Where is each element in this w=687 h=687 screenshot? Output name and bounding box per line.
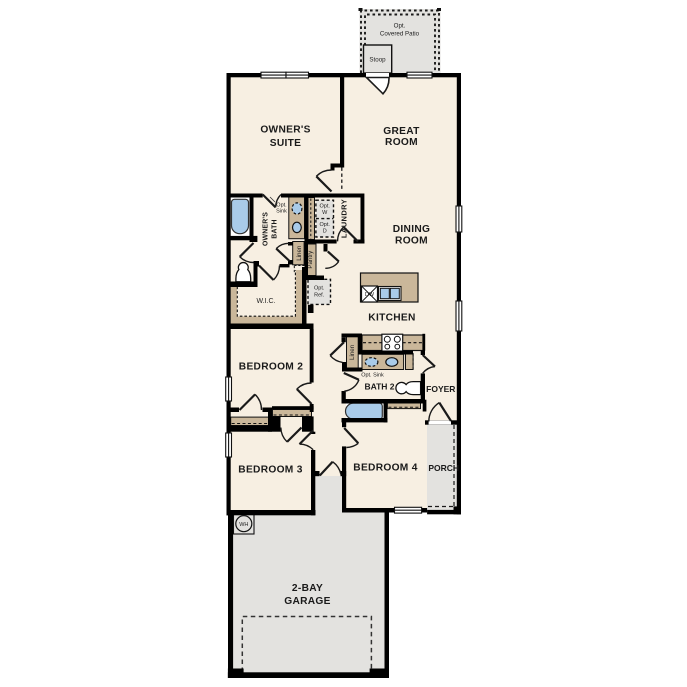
- svg-text:Opt.: Opt.: [319, 204, 330, 210]
- svg-text:ROOM: ROOM: [395, 236, 428, 247]
- svg-text:Sink: Sink: [276, 209, 287, 215]
- svg-text:Opt.: Opt.: [319, 222, 330, 228]
- svg-text:LAUNDRY: LAUNDRY: [339, 199, 348, 238]
- svg-text:SUITE: SUITE: [270, 138, 302, 149]
- svg-text:BATH: BATH: [272, 219, 279, 238]
- svg-text:PORCH: PORCH: [428, 463, 459, 473]
- svg-text:ROOM: ROOM: [385, 137, 418, 148]
- svg-text:BEDROOM 3: BEDROOM 3: [238, 464, 302, 475]
- svg-text:Opt. Sink: Opt. Sink: [361, 373, 384, 379]
- svg-text:Linen: Linen: [296, 245, 303, 261]
- svg-text:W: W: [322, 210, 328, 216]
- svg-text:DINING: DINING: [393, 224, 430, 235]
- svg-text:BEDROOM 2: BEDROOM 2: [239, 361, 303, 372]
- svg-text:Stoop: Stoop: [369, 57, 386, 64]
- svg-text:OWNER'S: OWNER'S: [260, 125, 310, 136]
- svg-text:Opt.: Opt.: [394, 23, 406, 30]
- svg-text:2-BAY: 2-BAY: [292, 583, 323, 594]
- svg-text:D: D: [323, 229, 327, 235]
- svg-text:Covered Patio: Covered Patio: [380, 31, 420, 38]
- svg-text:BEDROOM 4: BEDROOM 4: [353, 463, 417, 474]
- svg-text:DW: DW: [365, 292, 375, 298]
- svg-text:Opt.: Opt.: [314, 286, 325, 292]
- svg-text:Pantry: Pantry: [307, 250, 314, 269]
- svg-text:GARAGE: GARAGE: [284, 596, 331, 607]
- svg-text:Linen: Linen: [349, 344, 356, 360]
- svg-text:FOYER: FOYER: [426, 384, 455, 394]
- svg-text:Ref.: Ref.: [314, 293, 325, 299]
- svg-text:BATH 2: BATH 2: [364, 381, 394, 391]
- svg-text:GREAT: GREAT: [383, 126, 420, 137]
- svg-text:W.I.C.: W.I.C.: [256, 298, 275, 305]
- svg-text:KITCHEN: KITCHEN: [368, 312, 415, 323]
- svg-text:WH: WH: [239, 522, 248, 528]
- svg-text:OWNER'S: OWNER'S: [263, 212, 270, 246]
